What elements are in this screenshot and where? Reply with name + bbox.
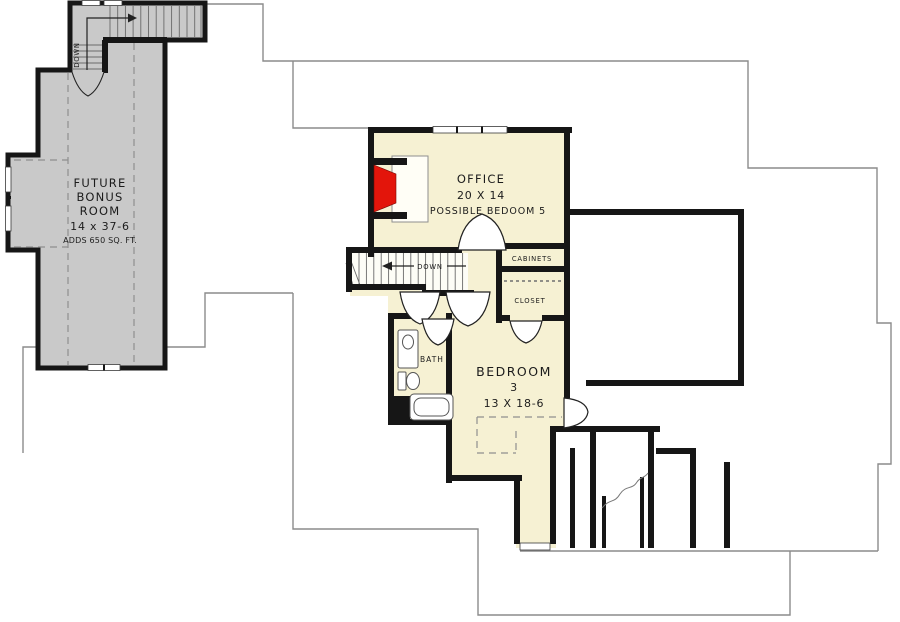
window (6, 206, 12, 231)
bath-label: BATH (420, 355, 444, 364)
bonus-room-label-3: ROOM (80, 204, 121, 218)
window (520, 543, 550, 550)
window (104, 1, 122, 6)
window (82, 1, 100, 6)
bonus-room-label-1: FUTURE (74, 176, 127, 190)
office-dims: 20 X 14 (457, 189, 505, 202)
window-mullion (6, 196, 12, 199)
stairwell-bottom-wall (346, 284, 426, 290)
closet-bottom-wall-stub (542, 315, 570, 321)
fireplace-frame-top (370, 158, 407, 165)
cabinets-label: CABINETS (512, 255, 552, 263)
cabinets-bottom-wall (496, 266, 570, 272)
fireplace-frame-bottom (370, 212, 407, 219)
sink (403, 335, 414, 349)
bonus-room: DOWN FUTURE BONUS ROOM 14 x 37-6 ADDS 65… (6, 1, 206, 371)
stair-tread-area-2 (420, 253, 468, 291)
dormer-inner-wall (602, 496, 606, 548)
dormer-wall (648, 432, 654, 548)
attic-bottom-wall (586, 380, 744, 386)
office-note: POSSIBLE BEDOOM 5 (430, 206, 546, 217)
bedroom-number: 3 (510, 381, 518, 394)
bonus-room-dims: 14 x 37-6 (70, 220, 130, 233)
window (433, 127, 507, 134)
bedroom-lower-right-wall (550, 426, 556, 544)
bonus-room-label-2: BONUS (76, 190, 123, 204)
office-label: OFFICE (457, 172, 505, 186)
window-mullion (481, 127, 483, 134)
closet-label: CLOSET (514, 297, 545, 305)
attic-right-wall (738, 209, 744, 386)
bedroom3-floor-lower (446, 428, 554, 480)
bedroom-bottom-wall (446, 475, 522, 481)
window-mullion (103, 365, 105, 371)
floor-plan-page: DOWN FUTURE BONUS ROOM 14 x 37-6 ADDS 65… (0, 0, 900, 622)
closet-left-wall (496, 243, 502, 323)
dormer-inner-wall (640, 477, 644, 548)
attic-access-door-swing (564, 398, 588, 428)
bonus-room-note: ADDS 650 SQ. FT. (63, 236, 137, 245)
cabinets-top-wall (496, 243, 570, 249)
toilet-tank (398, 372, 406, 390)
office-left-wall (368, 127, 374, 257)
dormer-wall (570, 448, 575, 548)
stairs-down-label: DOWN (417, 263, 443, 271)
toilet-bowl (407, 373, 420, 390)
dormer-wall (724, 462, 730, 548)
attic-top-wall (564, 209, 744, 215)
window-mullion (456, 127, 458, 134)
stair-wing-bottom-wall (103, 37, 167, 43)
stair-strip-right-wall (102, 40, 108, 73)
dormer-left-wall (514, 475, 520, 544)
bedroom-dims: 13 X 18-6 (484, 397, 545, 410)
office-right-wall (564, 127, 570, 398)
floor-plan-svg: DOWN FUTURE BONUS ROOM 14 x 37-6 ADDS 65… (0, 0, 900, 622)
dormer-wall (590, 432, 596, 548)
bathtub-inner (414, 398, 449, 416)
bath-corner-block (388, 396, 410, 425)
window (6, 167, 12, 192)
closet-bottom-wall-stub (496, 315, 510, 321)
dormer-wall (690, 448, 696, 548)
bedroom-label: BEDROOM (476, 364, 552, 379)
office-bottom-wall (346, 247, 462, 253)
bonus-down-label: DOWN (73, 42, 81, 68)
